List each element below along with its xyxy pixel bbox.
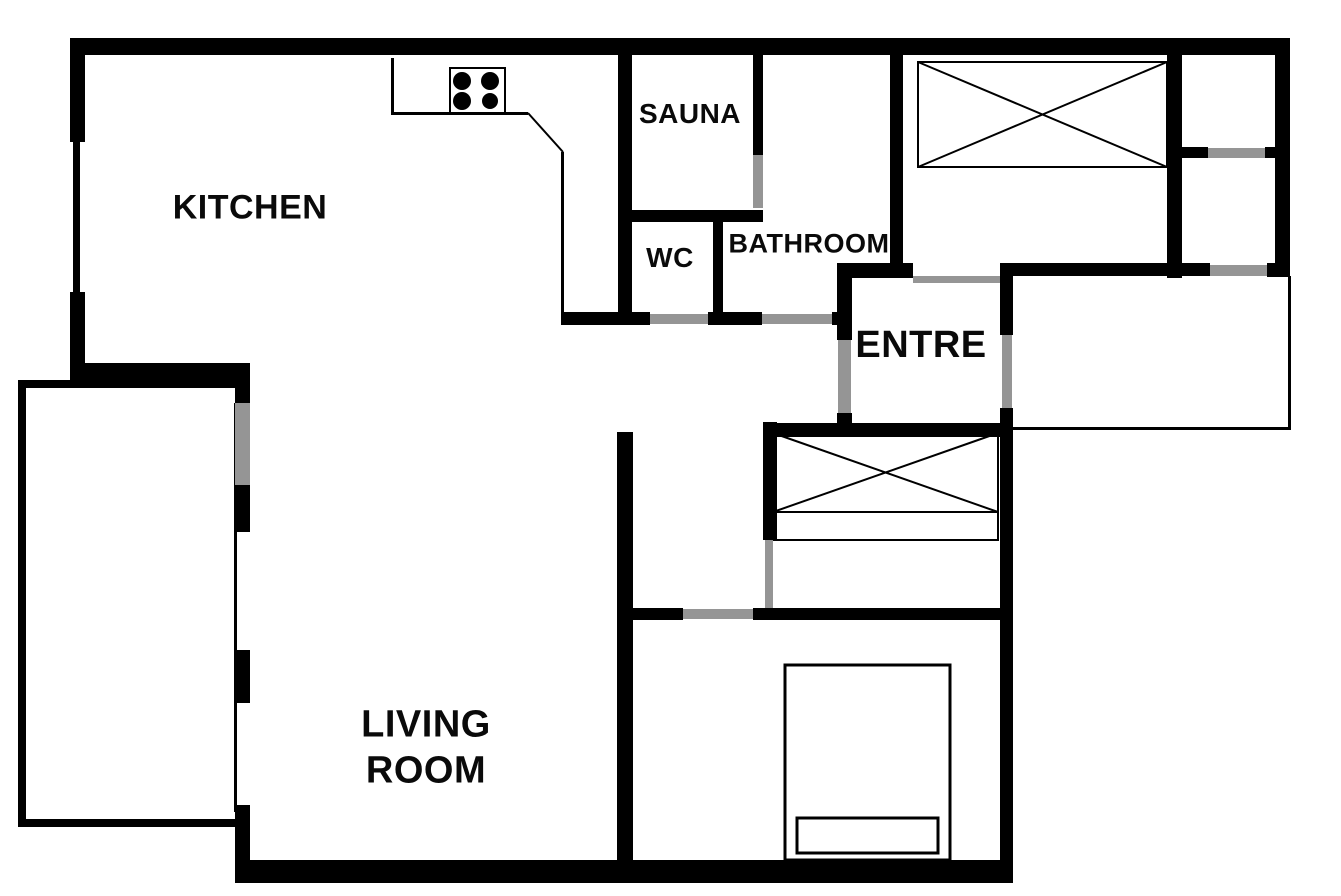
cabinet-edge xyxy=(561,152,564,313)
living-west-pier-3 xyxy=(235,650,250,703)
wc-east-wall xyxy=(713,218,723,315)
stove-burner-tl xyxy=(453,72,471,90)
entre-north-wall xyxy=(837,263,913,278)
hall-north-wall-mid xyxy=(708,312,762,325)
sauna-east-wall xyxy=(753,55,763,155)
bed-outline xyxy=(785,665,950,860)
bedroom-north-wall-west xyxy=(633,608,683,620)
tr-divider-east xyxy=(1265,147,1280,158)
sauna-door xyxy=(753,155,763,208)
sauna-south-wall xyxy=(618,210,763,222)
outer-wall-left-upper xyxy=(70,38,85,142)
living-west-pier-1 xyxy=(235,368,250,403)
entre-east-door xyxy=(1002,335,1012,408)
tr-divider-door xyxy=(1208,148,1265,158)
kitchen-window xyxy=(73,142,80,292)
outer-wall-bottom xyxy=(235,860,1013,883)
counter-diagonal xyxy=(528,113,563,152)
floor-plan: KITCHENSAUNAWCBATHROOMENTRELIVING ROOM xyxy=(0,0,1341,896)
hall-closet-door xyxy=(765,540,773,608)
hall-north-wall-west xyxy=(561,312,650,325)
wc-door xyxy=(650,314,708,324)
storage-rail-bottom xyxy=(1013,427,1291,430)
floor-plan-geometry xyxy=(0,0,1341,896)
entre-north-opening xyxy=(913,276,1000,283)
stove-burner-br xyxy=(482,93,498,109)
living-west-pier-2 xyxy=(235,485,250,532)
tr-divider-west xyxy=(1173,147,1208,158)
bedroom-door xyxy=(683,609,753,619)
closet-west-wall xyxy=(763,422,777,540)
bedroom-north-wall-east xyxy=(753,608,1000,620)
entre-south-wall xyxy=(765,423,1000,437)
closetroom-east-wall xyxy=(1167,55,1182,278)
balcony-rail-bottom xyxy=(18,819,237,827)
counter-edge-left xyxy=(391,58,394,115)
balcony-door xyxy=(235,403,250,485)
bathroom-east-wall xyxy=(890,55,903,263)
balcony-rail-left xyxy=(18,380,26,827)
stove-burner-tr xyxy=(481,72,499,90)
outer-wall-top xyxy=(70,38,1290,55)
sauna-west-wall xyxy=(618,55,632,312)
stove-burner-bl xyxy=(453,92,471,110)
entre-west-door xyxy=(838,340,851,413)
bedroom-east-wall xyxy=(1000,408,1013,872)
kitchen-south-wall xyxy=(73,363,250,380)
balcony-rail-top xyxy=(18,380,237,388)
storage-rail-right xyxy=(1288,276,1291,430)
entre-west-wall-upper xyxy=(837,278,852,340)
wardrobe-hall-shelf xyxy=(773,512,998,540)
bed-footboard xyxy=(797,818,938,853)
storage-door xyxy=(1210,265,1267,276)
living-east-wall xyxy=(617,432,633,863)
bathroom-door xyxy=(762,314,832,324)
